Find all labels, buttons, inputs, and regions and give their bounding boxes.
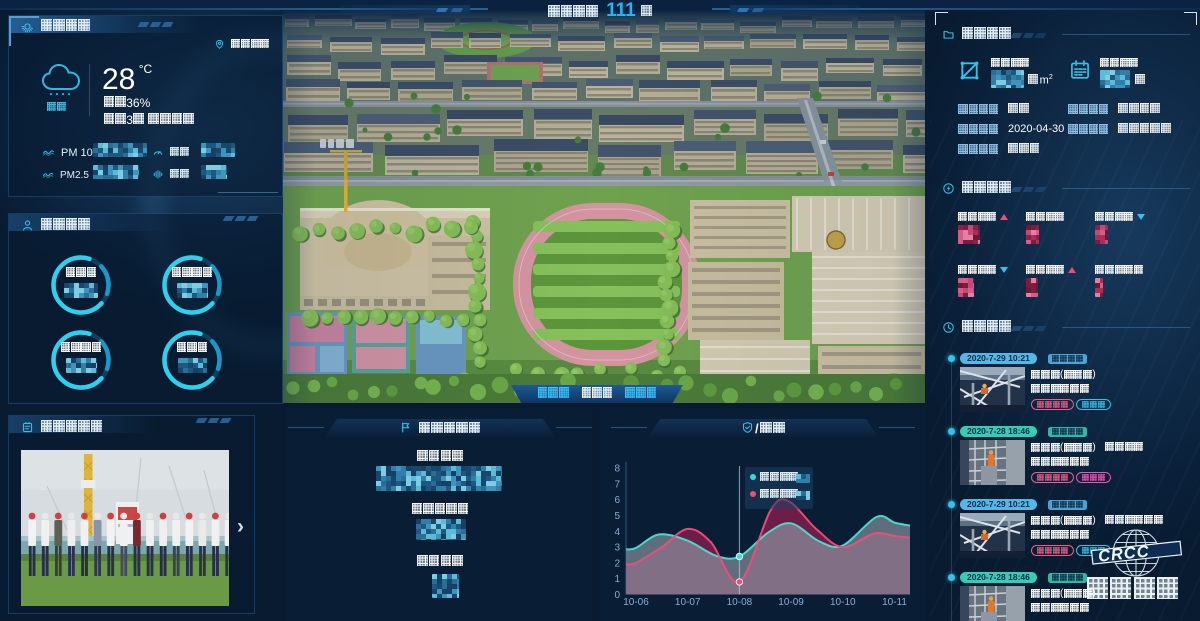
svg-text:8: 8 bbox=[614, 464, 620, 475]
svg-text:CRCC: CRCC bbox=[1097, 542, 1150, 565]
svg-text:10-06: 10-06 bbox=[623, 597, 649, 608]
svg-text:7: 7 bbox=[614, 479, 620, 490]
svg-text:10-08: 10-08 bbox=[727, 597, 753, 608]
svg-text:0: 0 bbox=[614, 590, 620, 601]
svg-text:10-10: 10-10 bbox=[830, 597, 856, 608]
svg-text:5: 5 bbox=[614, 511, 620, 522]
svg-text:10-11: 10-11 bbox=[882, 597, 907, 608]
svg-text:4: 4 bbox=[614, 527, 620, 538]
svg-text:10-07: 10-07 bbox=[675, 597, 701, 608]
svg-text:2: 2 bbox=[614, 558, 620, 569]
svg-text:3: 3 bbox=[614, 543, 620, 554]
svg-text:6: 6 bbox=[614, 495, 620, 506]
svg-text:1: 1 bbox=[614, 574, 620, 585]
svg-text:10-09: 10-09 bbox=[778, 597, 804, 608]
